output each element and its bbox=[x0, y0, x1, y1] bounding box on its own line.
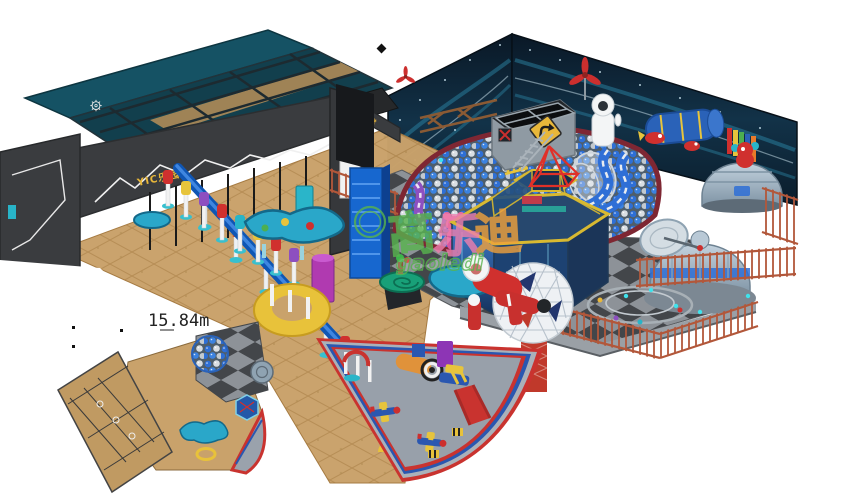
dimension-label: 15.84m bbox=[148, 311, 209, 331]
plan-dome bbox=[251, 361, 273, 383]
watermark-latin: gaoledi bbox=[396, 251, 484, 275]
yellow-planter bbox=[254, 284, 330, 336]
plan-table bbox=[180, 421, 228, 443]
scene: YIC乐园 运动殿堂 bbox=[0, 0, 850, 500]
blue-foam-cube bbox=[412, 344, 425, 357]
gate-cyan-accent bbox=[8, 205, 16, 219]
diamond-mark bbox=[377, 44, 387, 54]
plan-hex bbox=[236, 395, 258, 420]
gate-dark-slab bbox=[336, 84, 374, 170]
cross-flag-pane bbox=[498, 128, 512, 142]
purple-foam-box bbox=[437, 341, 453, 367]
small-propeller-icon bbox=[395, 66, 416, 84]
plan-ballpit bbox=[192, 336, 228, 372]
playground-render: YIC乐园 运动殿堂 bbox=[0, 0, 850, 500]
